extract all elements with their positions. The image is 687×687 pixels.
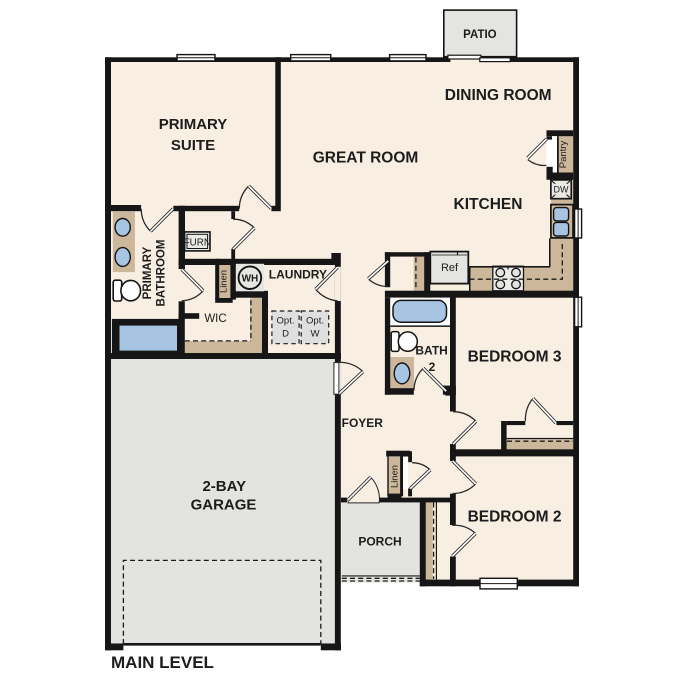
svg-text:FOYER: FOYER — [342, 416, 384, 430]
svg-text:DINING ROOM: DINING ROOM — [445, 87, 552, 104]
svg-text:2: 2 — [429, 360, 436, 374]
svg-text:FURN: FURN — [184, 238, 211, 249]
svg-text:D: D — [282, 329, 289, 340]
svg-text:BEDROOM 2: BEDROOM 2 — [468, 509, 562, 526]
svg-text:LAUNDRY: LAUNDRY — [269, 267, 327, 281]
svg-text:Linen: Linen — [389, 465, 400, 488]
svg-text:Opt.: Opt. — [306, 316, 324, 327]
svg-text:PRIMARY: PRIMARY — [159, 116, 228, 133]
svg-text:BATHROOM: BATHROOM — [156, 240, 168, 307]
svg-text:MAIN LEVEL: MAIN LEVEL — [111, 653, 214, 672]
svg-text:GREAT ROOM: GREAT ROOM — [313, 150, 419, 167]
svg-text:DW: DW — [554, 185, 569, 195]
svg-text:PRIMARY: PRIMARY — [142, 246, 154, 299]
svg-text:2-BAY: 2-BAY — [202, 478, 246, 495]
svg-text:SUITE: SUITE — [171, 137, 215, 154]
svg-text:Linen: Linen — [218, 270, 229, 293]
svg-text:WH: WH — [242, 273, 259, 284]
svg-text:KITCHEN: KITCHEN — [454, 196, 523, 213]
svg-text:Pantry: Pantry — [558, 141, 569, 169]
svg-text:PATIO: PATIO — [463, 29, 496, 41]
svg-text:WIC: WIC — [204, 313, 226, 325]
svg-text:Opt.: Opt. — [277, 316, 295, 327]
svg-text:PORCH: PORCH — [358, 535, 401, 549]
svg-text:Ref: Ref — [441, 262, 459, 274]
svg-text:BEDROOM 3: BEDROOM 3 — [468, 349, 562, 366]
svg-text:GARAGE: GARAGE — [191, 497, 257, 514]
svg-text:W: W — [311, 329, 320, 340]
svg-text:BATH: BATH — [415, 344, 447, 358]
